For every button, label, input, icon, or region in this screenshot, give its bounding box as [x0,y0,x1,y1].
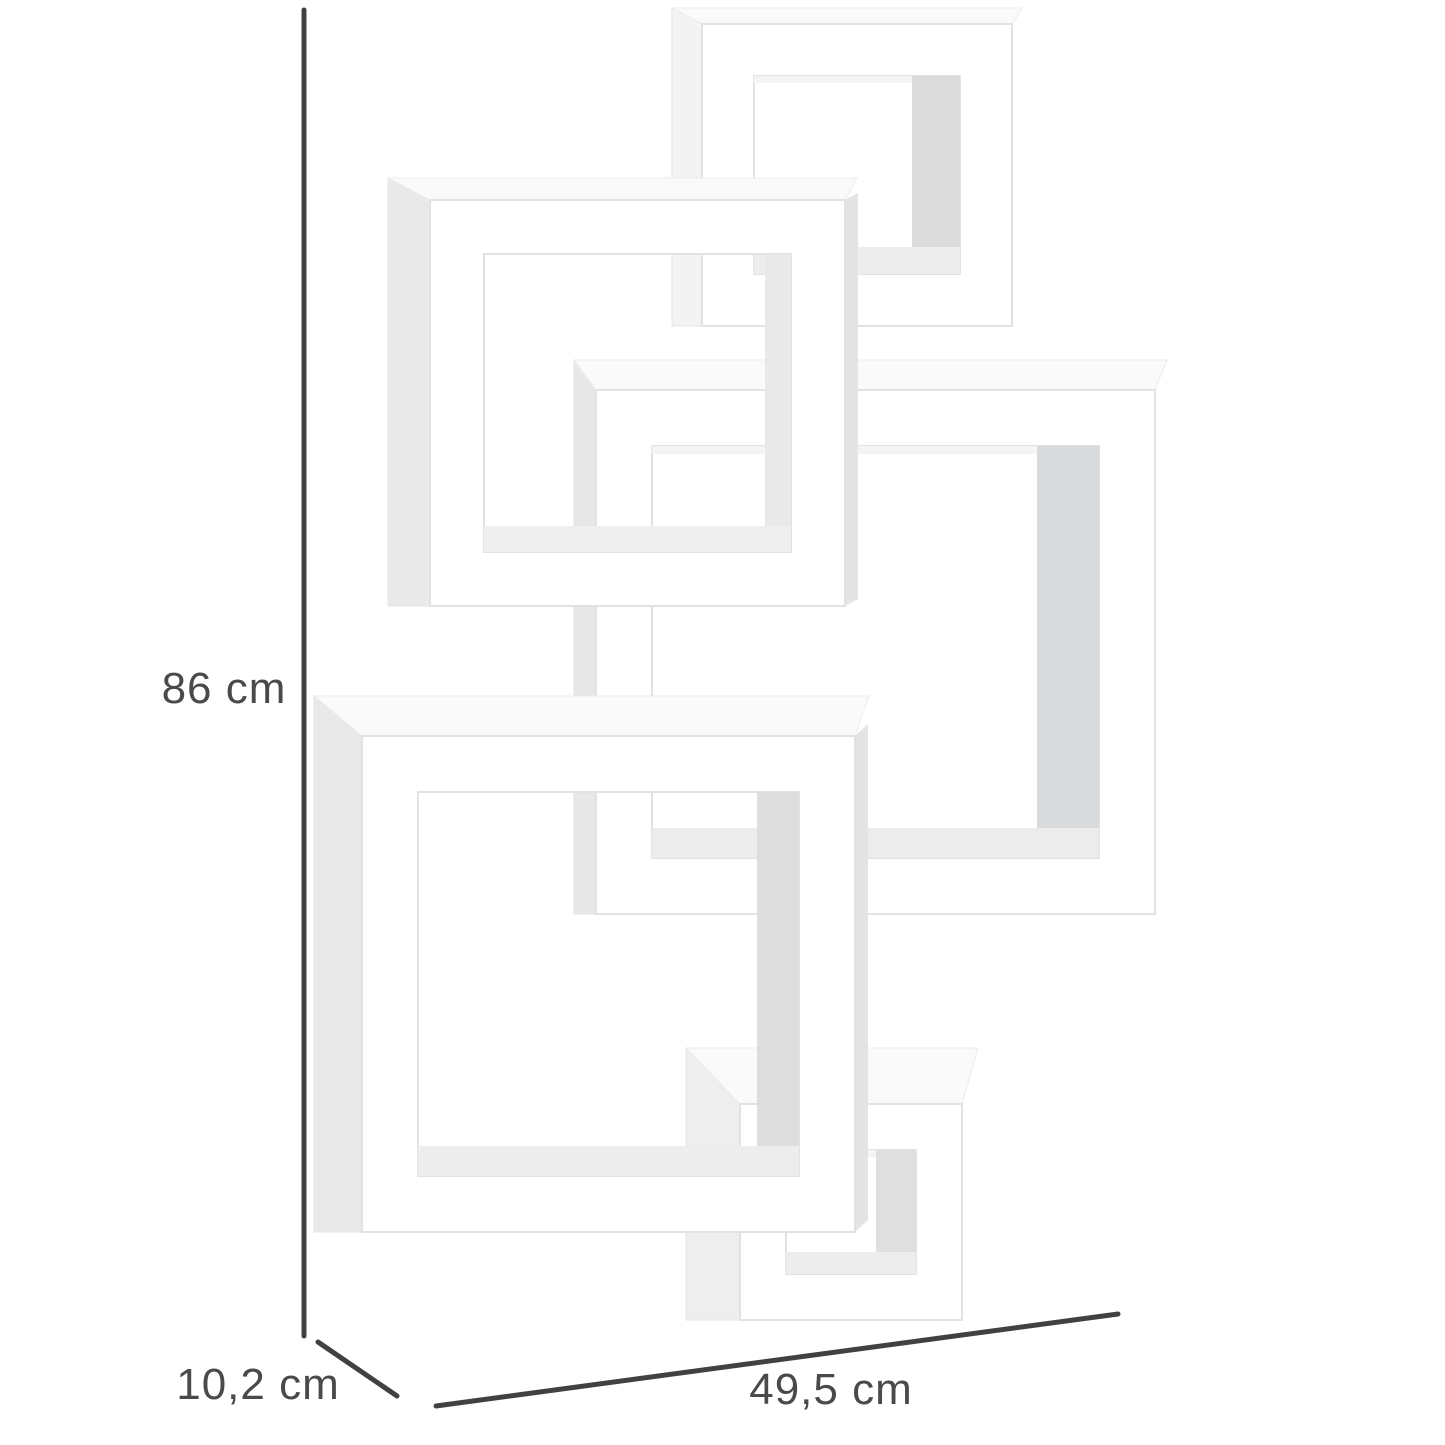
cube5-inner-shelf-face [786,1252,916,1274]
cube4-inner-shelf-face [418,1146,799,1176]
cube4-left-face [314,696,362,1232]
cube2-inner-right-face [765,254,791,552]
cube4-inner-right-face [757,792,799,1176]
shelf-dimension-illustration: 86 cm 10,2 cm 49,5 cm [0,0,1445,1445]
cube1-inner-right-face [912,76,960,274]
cube1-left-face [672,8,702,326]
cube2-left-face [388,178,430,606]
cube3-left-face [574,360,596,914]
cube2-inner-shelf-face [484,526,791,552]
product-dimension-diagram: 86 cm 10,2 cm 49,5 cm [0,0,1445,1445]
cube3-inner-shelf-face [652,828,1099,858]
depth-dimension-label: 10,2 cm [176,1360,340,1409]
height-dimension-label: 86 cm [162,664,287,713]
cube2-right-face [845,193,858,606]
cube-frame-middle-right [574,360,1167,914]
cube1-top-face [672,8,1022,24]
cube3-inner-top-face [652,446,1099,454]
cube-frame-middle-left [314,696,869,1232]
cube4-top-face [314,696,869,736]
width-dimension-label: 49,5 cm [749,1365,913,1414]
cube4-right-face [855,724,868,1232]
cube2-top-face [388,178,857,200]
cube3-inner-right-face [1037,446,1099,858]
cube3-top-face [574,360,1167,390]
